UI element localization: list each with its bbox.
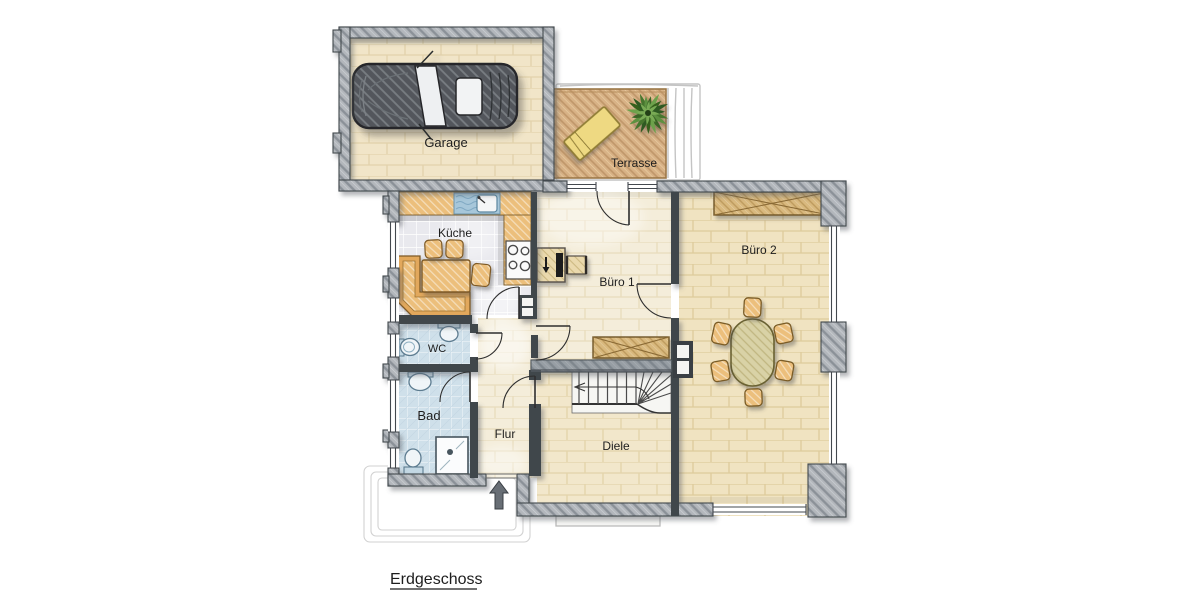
svg-text:Büro 1: Büro 1 [599, 275, 635, 289]
svg-text:Erdgeschoss: Erdgeschoss [390, 571, 483, 588]
svg-text:Büro 2: Büro 2 [741, 243, 777, 257]
svg-text:Bad: Bad [417, 408, 440, 423]
svg-text:Küche: Küche [438, 226, 472, 240]
svg-text:Terrasse: Terrasse [611, 156, 657, 170]
svg-text:Diele: Diele [602, 439, 630, 453]
svg-text:WC: WC [428, 343, 446, 355]
svg-text:Flur: Flur [495, 427, 516, 441]
svg-text:Garage: Garage [424, 135, 467, 150]
